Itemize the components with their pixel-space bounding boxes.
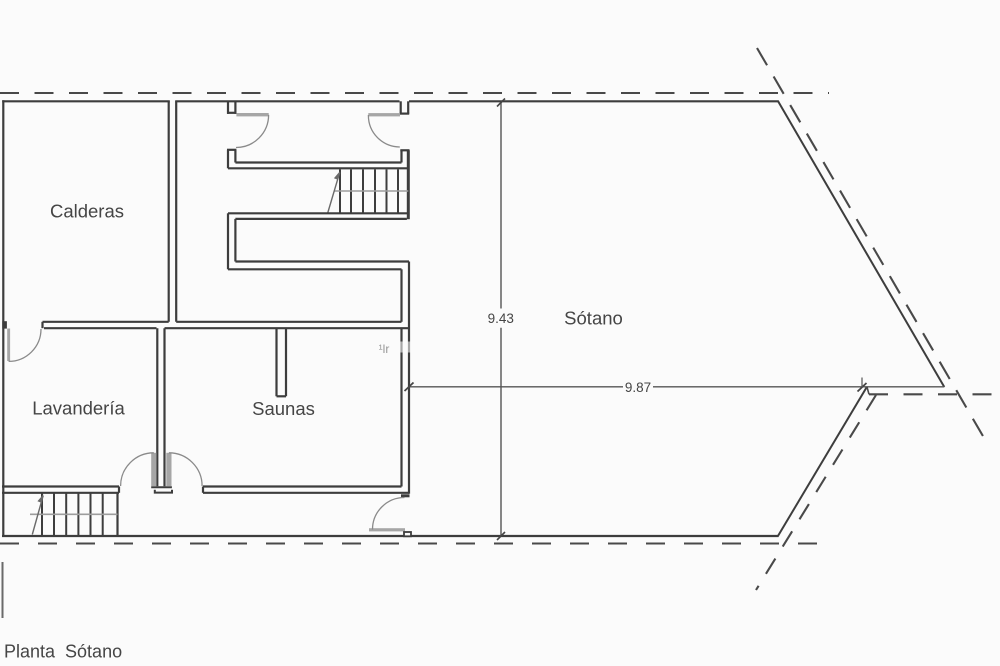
svg-text:9.43: 9.43: [488, 311, 514, 326]
svg-text:Sótano: Sótano: [564, 308, 623, 329]
svg-text:9.87: 9.87: [625, 380, 651, 395]
svg-text:¹lr: ¹lr: [379, 342, 390, 356]
svg-text:Lavandería: Lavandería: [32, 398, 125, 419]
svg-text:Calderas: Calderas: [50, 201, 124, 222]
svg-text:Planta Sótano: Planta Sótano: [4, 642, 122, 662]
svg-text:Saunas: Saunas: [252, 398, 315, 419]
